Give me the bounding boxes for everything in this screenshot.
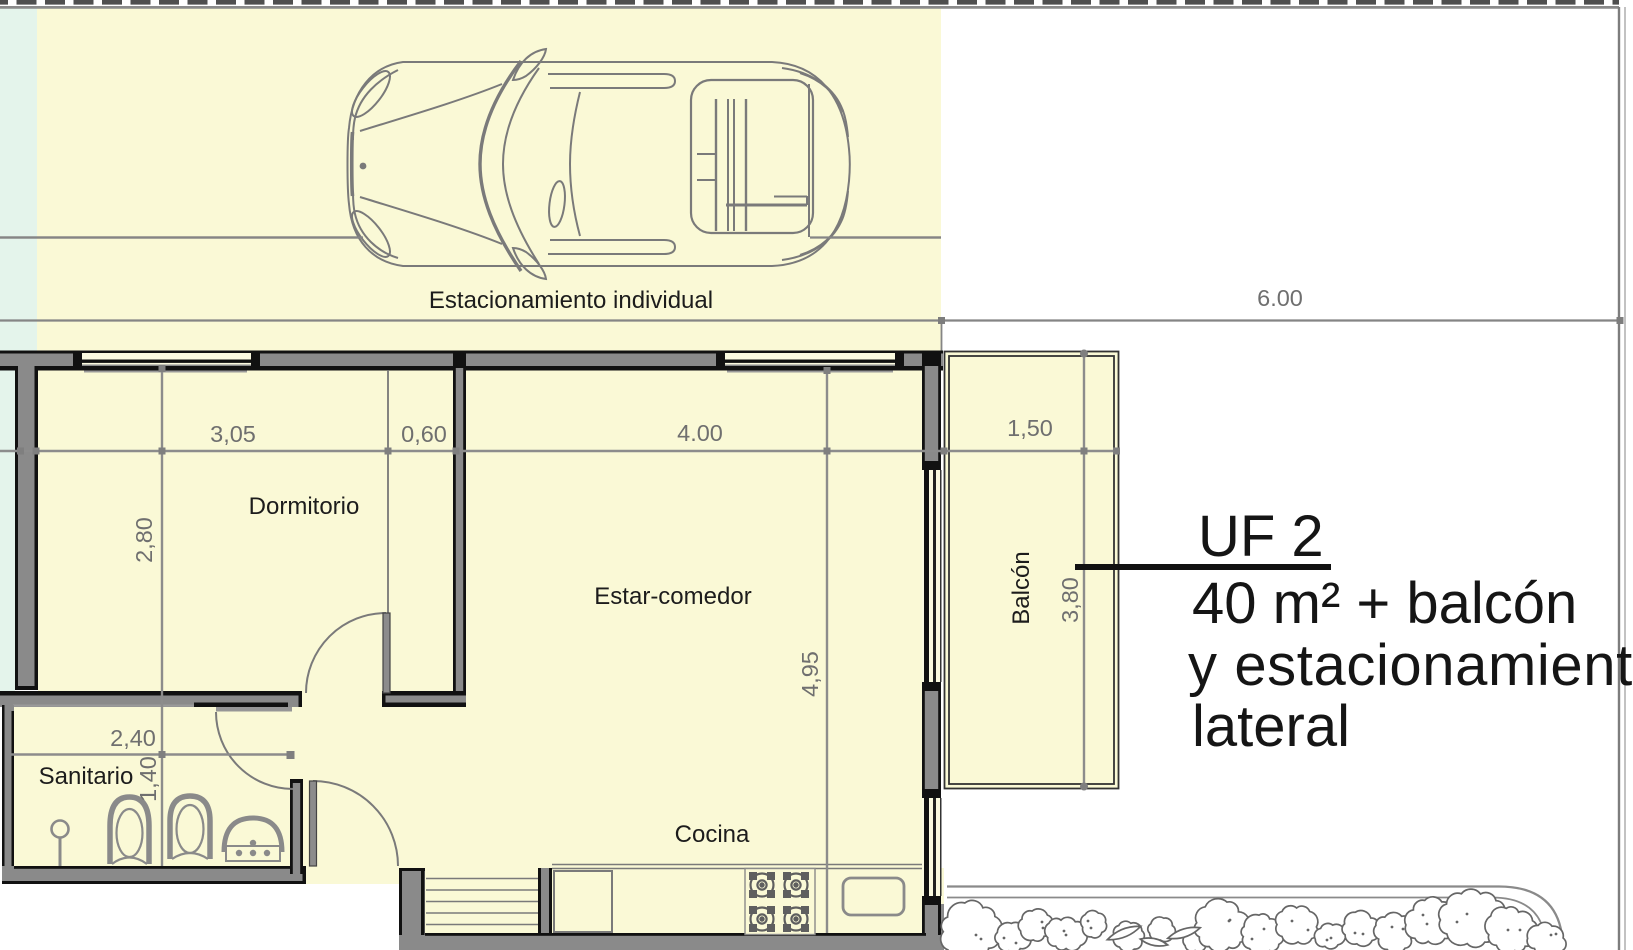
svg-text:lateral: lateral: [1192, 694, 1350, 759]
svg-text:Estacionamiento individual: Estacionamiento individual: [429, 287, 713, 314]
svg-text:4,95: 4,95: [797, 651, 823, 697]
svg-text:1,50: 1,50: [1007, 415, 1053, 441]
svg-text:1,40: 1,40: [135, 756, 161, 802]
svg-text:3,05: 3,05: [210, 421, 256, 447]
svg-text:Cocina: Cocina: [675, 821, 750, 848]
svg-text:2,40: 2,40: [110, 725, 156, 751]
svg-text:Estar-comedor: Estar-comedor: [594, 583, 751, 610]
svg-text:Balcón: Balcón: [1008, 551, 1035, 624]
svg-text:Dormitorio: Dormitorio: [249, 493, 360, 520]
svg-text:40 m² + balcón: 40 m² + balcón: [1192, 571, 1577, 636]
svg-text:UF 2: UF 2: [1198, 504, 1324, 569]
svg-text:0,60: 0,60: [401, 421, 447, 447]
svg-text:Sanitario: Sanitario: [39, 763, 134, 790]
svg-text:4.00: 4.00: [677, 420, 723, 446]
svg-text:6.00: 6.00: [1257, 285, 1303, 311]
svg-text:3,80: 3,80: [1057, 577, 1083, 623]
svg-text:y estacionamiento: y estacionamiento: [1188, 633, 1633, 698]
svg-text:2,80: 2,80: [131, 517, 157, 563]
